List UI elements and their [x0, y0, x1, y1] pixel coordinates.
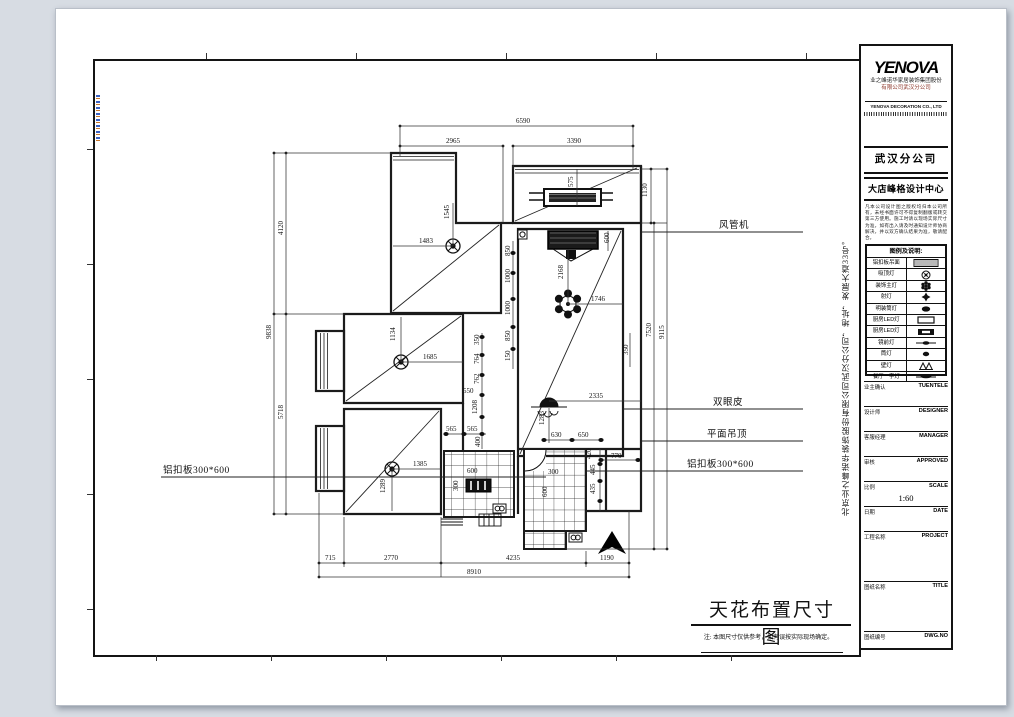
branch-name: 武汉分公司: [864, 146, 948, 174]
wall-legend-icon: [907, 361, 946, 371]
dimension-label: 1283: [538, 411, 546, 426]
field-label-cn: 日期: [864, 508, 875, 516]
frame-tick-mark: [506, 53, 507, 59]
field-label-en: TITLE: [932, 583, 948, 591]
dimension-label: 764: [473, 353, 481, 364]
downlight-dot: [597, 479, 602, 483]
legend-row: 明装筒灯: [867, 304, 945, 315]
frame-tick-mark: [87, 609, 93, 610]
dim-end-marker: [666, 548, 669, 551]
annotation-label: 双眼皮: [713, 396, 743, 408]
frame-tick-mark: [87, 264, 93, 265]
legend-row: 射灯: [867, 292, 945, 303]
dimension-label: 1208: [471, 400, 479, 415]
dimension-label: 1483: [419, 237, 434, 245]
dim-end-marker: [440, 562, 443, 565]
dimension-label: 4120: [277, 221, 285, 236]
frame-tick-mark: [87, 379, 93, 380]
frame-tick-mark: [731, 655, 732, 661]
legend-row: 镜前灯: [867, 338, 945, 349]
spot-legend-icon: [907, 292, 946, 302]
legend-row: 筒灯: [867, 349, 945, 360]
dim-end-marker: [285, 152, 288, 155]
aluminum-panel-ceiling: [444, 449, 586, 549]
field-date: 日期DATE: [864, 506, 948, 516]
downlight-dot: [510, 325, 515, 329]
annotation-label: 平面吊顶: [707, 429, 747, 440]
field-manager: 客服经理MANAGER: [864, 431, 948, 441]
downlight-dot: [479, 393, 484, 397]
dimension-label: 1000: [504, 269, 512, 284]
legend-row: 壁灯: [867, 361, 945, 372]
field-label-en: DATE: [933, 508, 948, 516]
dimension-label: 850: [504, 245, 512, 256]
field-scale: 比例SCALE: [864, 481, 948, 491]
mirror-legend-icon: [907, 338, 946, 348]
dimension-label: 300: [452, 480, 460, 491]
frame-tick-mark: [356, 53, 357, 59]
field-label-en: MANAGER: [919, 433, 948, 441]
downlight-dot: [597, 499, 602, 503]
kitchen-led-lamp: [466, 479, 491, 492]
title-block: YENOVA 业之峰诺华家居装饰集团股份 有限公司武汉分公司 YENOVA DE…: [859, 44, 953, 650]
frame-tick-mark: [206, 53, 207, 59]
dimension-label: 715: [325, 554, 336, 562]
dimension-label: 565: [467, 425, 478, 433]
field-label-cn: 图纸名称: [864, 583, 886, 591]
field-label-cn: 比例: [864, 483, 875, 491]
downlight-dot: [461, 432, 466, 436]
led-solid-legend-icon: [907, 326, 946, 336]
divider: [865, 101, 947, 102]
dimension-label: 1385: [413, 460, 428, 468]
surface-legend-icon: [907, 304, 946, 314]
field-label-en: APPROVED: [917, 458, 948, 466]
panel-legend-icon: [907, 258, 946, 268]
drawing-note: 注: 本图尺寸仅供参考，如有误按实际现场确定。: [681, 632, 856, 641]
dim-end-marker: [632, 125, 635, 128]
dimension-label: 2965: [446, 137, 461, 145]
dimension-label: 5718: [277, 405, 285, 420]
frame-tick-mark: [386, 655, 387, 661]
company-name-cn: 业之峰诺华家居装饰集团股份 有限公司武汉分公司: [863, 78, 949, 92]
frame-tick-mark: [806, 53, 807, 59]
drawing-title-rule: [691, 624, 851, 627]
field-title: 图纸名称TITLE: [864, 581, 948, 591]
dimension-label: 2168: [557, 265, 565, 280]
dimension-label: 9115: [658, 325, 666, 339]
field-label-en: SCALE: [929, 483, 948, 491]
field-designer: 设计师DESIGNER: [864, 406, 948, 416]
dimension-label: 762: [473, 373, 481, 384]
dimension-label: 1685: [423, 353, 438, 361]
company-cn-line1: 业之峰诺华家居装饰集团股份: [863, 78, 949, 85]
dimension-label: 650: [578, 431, 589, 439]
frame-tick-mark: [87, 149, 93, 150]
frame-tick-mark: [271, 655, 272, 661]
field-label-cn: 审核: [864, 458, 875, 466]
field-label-en: DWG.NO: [924, 633, 948, 641]
dimension-label: 7520: [645, 323, 653, 338]
led-open-legend-icon: [907, 315, 946, 325]
dimension-label: 600: [541, 486, 549, 497]
dimension-label: 850: [504, 330, 512, 341]
frame-tick-mark: [616, 655, 617, 661]
dim-end-marker: [399, 125, 402, 128]
dim-end-marker: [273, 513, 276, 516]
company-cn-line2: 有限公司武汉分公司: [863, 85, 949, 92]
legend-label: 明装筒灯: [867, 304, 907, 314]
dimension-label: 565: [446, 425, 457, 433]
field-label-en: TUENTELE: [918, 383, 948, 391]
frame-tick-mark: [656, 53, 657, 59]
duct-ac-unit: [548, 231, 598, 261]
ceiling-plan-drawing: 6590296533909838412057181130752091153505…: [101, 81, 861, 661]
dimension-label: 150: [504, 350, 512, 361]
downlight-dot: [510, 297, 515, 301]
fine-print-line: [864, 112, 948, 116]
copyright-disclaimer: 凡本公司设计图之版权均归本公司所有，未经书面许可不得复制翻版或转交第三方使用。施…: [865, 204, 947, 240]
dim-end-marker: [285, 513, 288, 516]
legend-row: 铝扣板吊面: [867, 258, 945, 269]
legend-label: 铝扣板吊面: [867, 258, 907, 268]
legend-title: 图例及说明:: [867, 246, 945, 258]
dimension-label: 350: [473, 334, 481, 345]
downlight-dot: [479, 415, 484, 419]
field-project: 工程名称PROJECT: [864, 531, 948, 541]
dimension-label: 3390: [567, 137, 582, 145]
dim-end-marker: [343, 562, 346, 565]
dimension-label: 350: [622, 344, 630, 355]
field-tuentele: 业主确认TUENTELE: [864, 381, 948, 391]
legend-label: 装饰主灯: [867, 281, 907, 291]
legend-label: 吸顶灯: [867, 269, 907, 279]
dim-end-marker: [628, 562, 631, 565]
down-legend-icon: [907, 349, 946, 359]
field-label-cn: 客服经理: [864, 433, 886, 441]
dimension-label: 6590: [516, 117, 531, 125]
dimension-label: 600: [467, 467, 478, 475]
legend-row: 装饰主灯: [867, 281, 945, 292]
downlight-dot: [598, 438, 603, 442]
legend-row: 厨房LED灯: [867, 315, 945, 326]
frame-tick-mark: [156, 655, 157, 661]
dimension-label: 575: [567, 176, 575, 187]
design-center-name: 大店峰格设计中心: [864, 177, 948, 201]
dim-end-marker: [650, 168, 653, 171]
dimension-label: 9838: [265, 325, 273, 340]
legend-label: 镜前灯: [867, 338, 907, 348]
dimension-label: 435: [589, 483, 597, 494]
dimension-label: 8910: [467, 568, 482, 576]
ceiling-legend-icon: [907, 269, 946, 279]
dimension-label: 2770: [384, 554, 399, 562]
dim-end-marker: [628, 576, 631, 579]
downlight-dot: [597, 462, 602, 466]
field-label-en: PROJECT: [922, 533, 948, 541]
company-name-en: YENOVA DECORATION CO., LTD: [861, 104, 951, 109]
legend-box: 图例及说明: 铝扣板吊面吸顶灯装饰主灯射灯明装筒灯厨房LED灯厨房LED灯镜前灯…: [865, 244, 947, 376]
legend-label: 厨房LED灯: [867, 326, 907, 336]
dim-end-marker: [512, 145, 515, 148]
dim-end-marker: [318, 562, 321, 565]
dimension-label: 1190: [600, 554, 614, 562]
dim-end-marker: [273, 313, 276, 316]
dim-end-marker: [653, 548, 656, 551]
legend-label: 射灯: [867, 292, 907, 302]
legend-row: 吸顶灯: [867, 269, 945, 280]
field-label-cn: 设计师: [864, 408, 880, 416]
frame-tick-mark: [501, 655, 502, 661]
dimension-label: 600: [603, 232, 611, 243]
dim-end-marker: [585, 562, 588, 565]
dimension-label: 300: [548, 468, 559, 476]
company-logo: YENOVA: [861, 58, 951, 78]
downlight-dot: [635, 458, 640, 462]
dim-end-marker: [285, 313, 288, 316]
annotation-label: 铝扣板300*600: [687, 458, 754, 470]
north-arrow: [598, 531, 626, 554]
legend-label: 壁灯: [867, 361, 907, 371]
dim-end-marker: [632, 145, 635, 148]
dim-end-marker: [653, 222, 656, 225]
dim-end-marker: [666, 168, 669, 171]
dimension-label: 2335: [589, 392, 604, 400]
dimension-label: 445: [589, 464, 597, 475]
dim-end-marker: [318, 576, 321, 579]
dimension-label: 1000: [504, 301, 512, 316]
dimension-label: 1545: [443, 205, 451, 220]
annotation-label: 铝扣板300*600: [163, 464, 230, 476]
dimension-label: 420: [585, 448, 593, 459]
dim-end-marker: [399, 145, 402, 148]
field-label-en: DESIGNER: [919, 408, 948, 416]
dimension-label: 1746: [591, 295, 606, 303]
field-dwg-no: 图纸编号DWG.NO: [864, 631, 948, 641]
downlight-dot: [598, 458, 603, 462]
legend-label: 厨房LED灯: [867, 315, 907, 325]
frame-tick-mark: [87, 494, 93, 495]
legend-label: 筒灯: [867, 349, 907, 359]
side-company-text: 北京业之峰诺华装饰股份有限公司武汉分公司，地址，发展大道33号。: [840, 104, 855, 649]
downlight-dot: [569, 438, 574, 442]
field-label-cn: 业主确认: [864, 383, 886, 391]
drawing-sheet: 6590296533909838412057181130752091153505…: [55, 8, 1007, 706]
downlight-dot: [510, 347, 515, 351]
dimension-label: 400: [474, 436, 482, 447]
corner-downlight: [518, 230, 527, 239]
dimension-label: 550: [463, 387, 474, 395]
dimension-label: 770: [611, 452, 622, 460]
linear-dining-lamp: [529, 189, 613, 206]
dimension-label: 4235: [506, 554, 521, 562]
downlight-dot: [541, 438, 546, 442]
scale-value: 1:60: [861, 493, 951, 503]
dim-end-marker: [650, 222, 653, 225]
dimension-label: 1134: [389, 327, 397, 341]
field-label-cn: 图纸编号: [864, 633, 886, 641]
dim-end-marker: [273, 152, 276, 155]
field-approved: 审核APPROVED: [864, 456, 948, 466]
downlight-dot: [479, 432, 484, 436]
main-legend-icon: [907, 281, 946, 291]
dimension-label: 1289: [379, 479, 387, 494]
dimension-label: 1130: [641, 183, 649, 197]
field-label-cn: 工程名称: [864, 533, 886, 541]
annotation-label: 风管机: [719, 219, 749, 231]
legend-row: 厨房LED灯: [867, 326, 945, 337]
dim-end-marker: [502, 145, 505, 148]
cad-micro-annotations: [96, 95, 100, 143]
dimension-label: 630: [551, 431, 562, 439]
